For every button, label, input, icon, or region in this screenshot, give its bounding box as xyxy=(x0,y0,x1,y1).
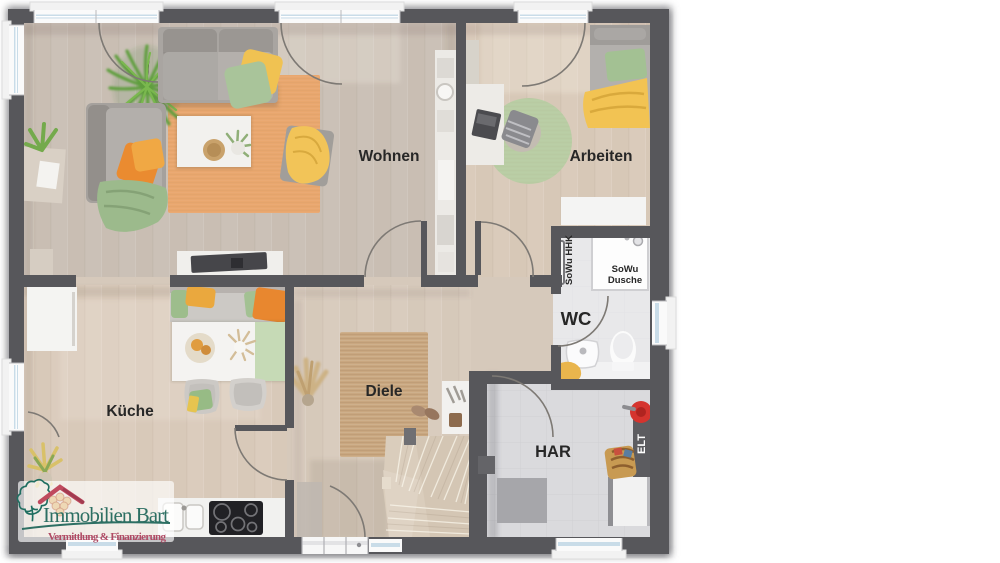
svg-text:Küche: Küche xyxy=(106,403,154,420)
svg-text:SoWu HHK: SoWu HHK xyxy=(564,235,575,285)
svg-text:Dusche: Dusche xyxy=(608,275,642,286)
svg-text:Arbeiten: Arbeiten xyxy=(570,148,633,165)
svg-text:SoWu: SoWu xyxy=(612,264,639,275)
svg-text:Diele: Diele xyxy=(365,383,402,400)
svg-text:ELT: ELT xyxy=(636,434,648,454)
svg-text:Wohnen: Wohnen xyxy=(359,148,420,165)
svg-text:HAR: HAR xyxy=(535,443,571,461)
svg-text:WC: WC xyxy=(561,308,592,329)
svg-text:Vermittlung & Finanzierung: Vermittlung & Finanzierung xyxy=(48,531,167,543)
